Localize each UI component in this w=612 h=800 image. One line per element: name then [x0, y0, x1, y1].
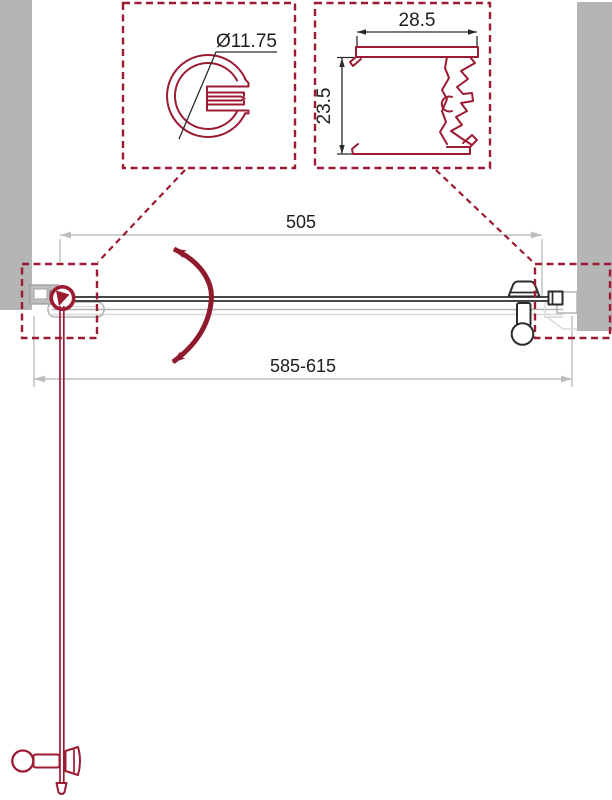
dimension-overall-width: 585-615 — [34, 316, 572, 387]
door-end-cap — [549, 292, 563, 305]
handle-open — [12, 747, 80, 775]
leader-line-right — [436, 170, 534, 263]
overall-width-label: 585-615 — [270, 356, 336, 376]
detail-box-wall-profile: 28.5 23.5 — [314, 3, 490, 168]
threshold-profile-lines — [52, 310, 563, 315]
hinge-profile-diameter-label: Ø11.75 — [216, 31, 277, 52]
wall-profile-height-label: 23.5 — [314, 88, 335, 125]
glass-width-label: 505 — [286, 212, 316, 232]
drawing-svg: 505 585-615 — [0, 0, 612, 800]
wall-right — [577, 2, 612, 331]
hinge-pivot — [51, 287, 73, 309]
wall-profile-width-label: 28.5 — [399, 10, 436, 31]
leader-line-left — [98, 170, 185, 262]
technical-drawing-canvas: 505 585-615 — [0, 0, 612, 800]
swing-arc — [173, 249, 211, 362]
detail-box-hinge-profile: Ø11.75 — [123, 3, 295, 168]
door-closed-glass — [74, 297, 549, 301]
